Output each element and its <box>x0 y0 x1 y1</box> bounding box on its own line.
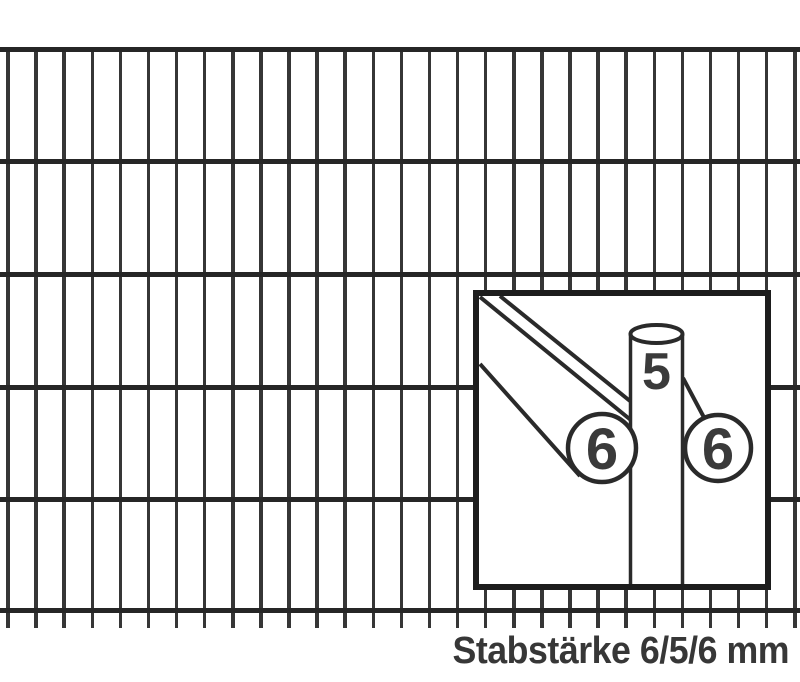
mesh-vertical-wire <box>456 47 460 628</box>
mesh-horizontal-wire <box>0 272 800 277</box>
mesh-vertical-wire <box>287 47 291 628</box>
mesh-vertical-wire <box>91 47 95 628</box>
mesh-vertical-wire <box>147 47 151 628</box>
mesh-vertical-wire <box>34 47 38 628</box>
mesh-horizontal-wire <box>0 47 800 52</box>
rod-thickness-caption: Stabstärke 6/5/6 mm <box>452 632 789 670</box>
vertical-rod-thickness-label: 5 <box>642 343 671 401</box>
rod-thickness-diagram: 5 6 6 <box>479 296 765 584</box>
rear-rod-thickness-label: 6 <box>702 417 734 482</box>
fence-product-image: 5 6 6 Stabstärke 6/5/6 mm <box>0 0 800 682</box>
front-rod-thickness-label: 6 <box>586 417 618 482</box>
front-rod-bottom-edge <box>480 364 580 476</box>
mesh-vertical-wire <box>231 47 235 628</box>
front-rod-top-edge <box>500 296 630 401</box>
mesh-vertical-wire <box>343 47 347 628</box>
rear-rod-top-edge <box>480 297 632 421</box>
mesh-vertical-wire <box>400 47 404 628</box>
mesh-vertical-wire <box>203 47 207 628</box>
mesh-vertical-wire <box>119 47 123 628</box>
mesh-vertical-wire <box>62 47 66 628</box>
mesh-vertical-wire <box>315 47 319 628</box>
mesh-vertical-wire <box>372 47 376 628</box>
mesh-horizontal-wire <box>0 608 800 613</box>
mesh-vertical-wire <box>793 47 797 628</box>
mesh-horizontal-wire <box>0 159 800 164</box>
mesh-vertical-wire <box>175 47 179 628</box>
mesh-vertical-wire <box>259 47 263 628</box>
detail-inset: 5 6 6 <box>473 290 771 590</box>
vertical-rod-top-cap <box>631 325 683 343</box>
mesh-vertical-wire <box>6 47 10 628</box>
mesh-vertical-wire <box>428 47 432 628</box>
